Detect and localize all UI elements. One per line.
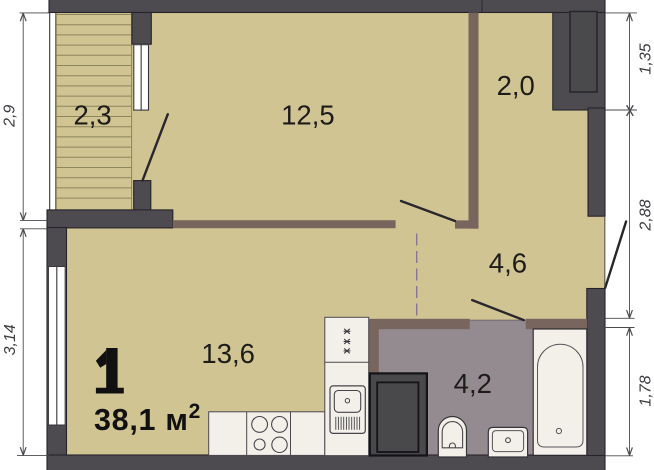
svg-text:2,0: 2,0 <box>497 70 535 101</box>
svg-text:2,88: 2,88 <box>638 199 654 231</box>
svg-text:13,6: 13,6 <box>201 338 255 369</box>
svg-text:12,5: 12,5 <box>281 99 335 130</box>
svg-text:1,78: 1,78 <box>638 375 654 406</box>
svg-text:2,3: 2,3 <box>73 99 111 130</box>
svg-text:4,6: 4,6 <box>489 247 527 278</box>
svg-text:1,35: 1,35 <box>638 43 654 74</box>
svg-text:3,14: 3,14 <box>2 324 19 355</box>
svg-text:4,2: 4,2 <box>454 368 492 399</box>
svg-text:2,9: 2,9 <box>2 105 19 128</box>
svg-text:38,1 м2: 38,1 м2 <box>94 400 201 437</box>
